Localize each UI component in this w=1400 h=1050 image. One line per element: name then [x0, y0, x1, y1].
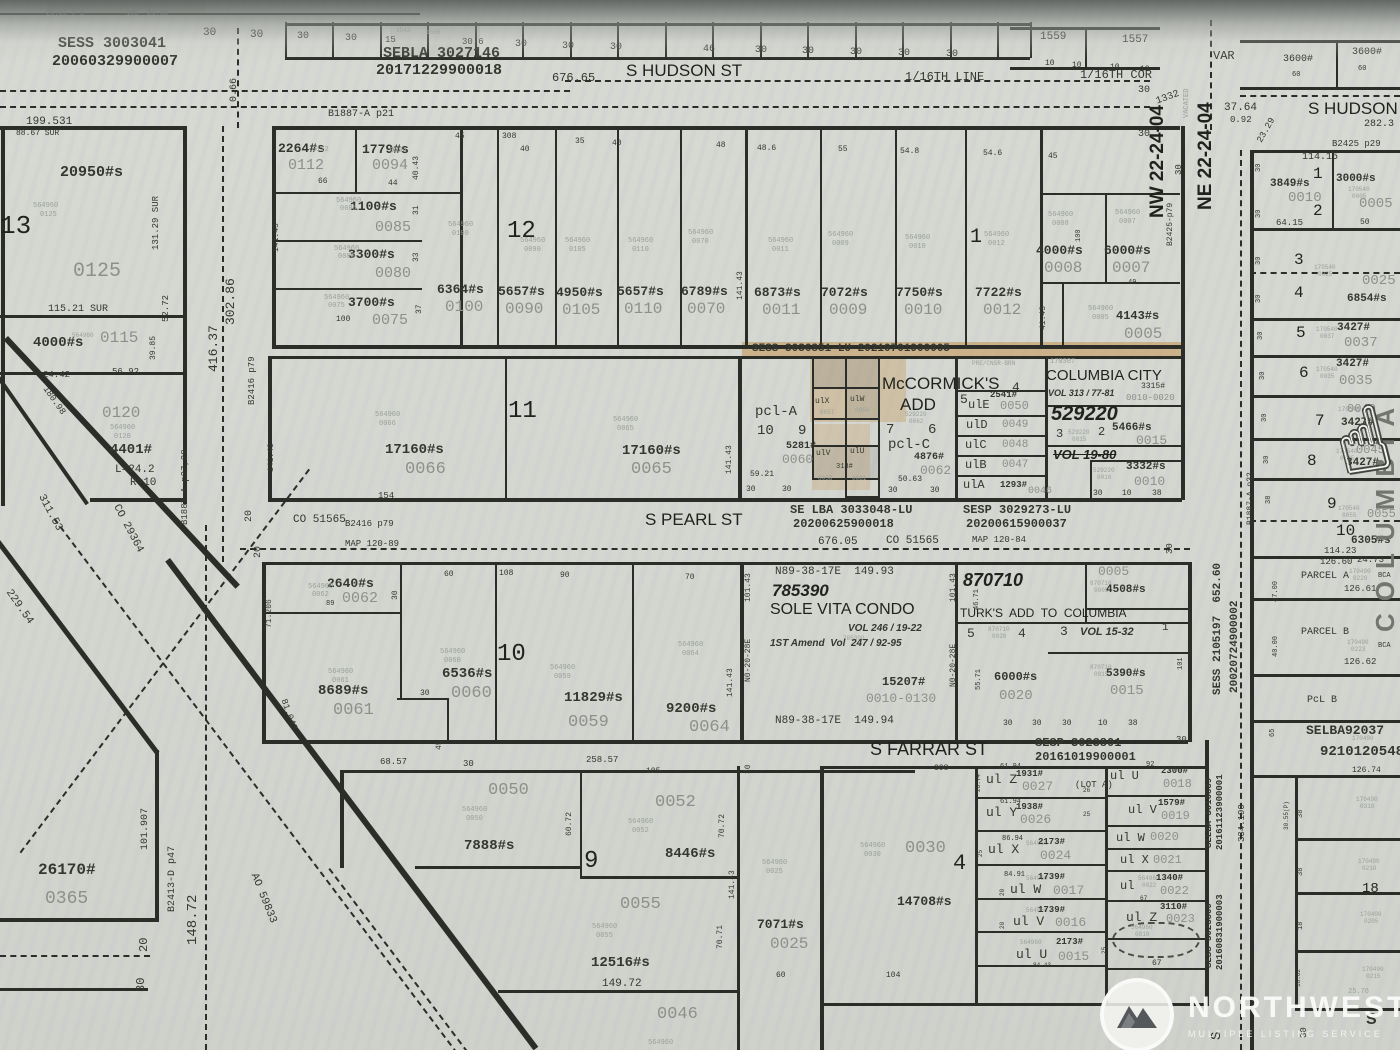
map-label: 0075: [372, 313, 408, 328]
map-label: 564960: [328, 669, 353, 676]
parcel-boundary: [1295, 838, 1400, 841]
map-label: 0060: [782, 453, 813, 466]
map-label: 3315#: [1141, 383, 1165, 391]
map-label: 0022: [1160, 885, 1189, 897]
map-label: 54.8: [900, 148, 919, 156]
map-label: SEBLA 3027146: [383, 46, 500, 61]
map-label: 15207#: [882, 676, 925, 688]
map-label: ul X: [988, 843, 1019, 856]
map-label: 20060329900007: [52, 54, 178, 69]
parcel-boundary: [1250, 674, 1400, 677]
map-label: 0062: [342, 591, 378, 606]
map-label: 564960: [592, 924, 617, 931]
map-label: 18: [1298, 922, 1305, 930]
map-label: 30: [888, 487, 898, 495]
map-label: 6364#s: [437, 283, 484, 296]
map-label: 39.85: [150, 336, 158, 360]
map-label: VOL 246 / 19-22: [848, 624, 922, 634]
map-label: 0.66: [230, 78, 240, 102]
map-label: 50.63: [898, 476, 922, 484]
map-label: PRE/CNSR-BRN: [972, 361, 1015, 367]
map-label: 0020: [999, 689, 1033, 703]
map-label: ulW: [850, 396, 864, 404]
map-label: 0310: [1360, 804, 1374, 810]
map-label: VACATED: [1184, 89, 1191, 118]
map-label: 0080: [338, 254, 355, 261]
map-label: 0049: [1002, 420, 1028, 431]
map-label: 23.29: [1256, 117, 1277, 145]
parcel-boundary: [745, 126, 748, 345]
map-label: 131.29 SUR: [152, 196, 161, 250]
map-label: 0012: [983, 302, 1021, 318]
map-label: 3: [1056, 428, 1063, 440]
map-label: 0110: [624, 301, 662, 317]
map-label: 10: [1098, 720, 1108, 728]
map-label: 564960: [72, 333, 94, 339]
parcel-boundary: [340, 770, 915, 773]
map-label: 30: [420, 690, 430, 698]
map-label: 40: [612, 140, 622, 148]
map-label: 30: [1264, 456, 1271, 464]
map-label: 5: [960, 393, 968, 406]
map-label: 30: [745, 764, 753, 774]
map-label: 20: [138, 938, 150, 952]
map-label: MAP 120-84: [972, 536, 1026, 545]
map-label: 0046: [657, 1006, 698, 1023]
map-label: 0007: [1112, 260, 1150, 276]
map-label: CO 51565: [886, 536, 939, 547]
map-label: 0120: [114, 434, 131, 441]
map-label: 0220: [1353, 576, 1367, 582]
map-label: 10: [1140, 66, 1150, 74]
map-label: 84.43: [1033, 963, 1051, 969]
map-label: 5: [967, 627, 975, 640]
parcel-boundary: [0, 90, 570, 92]
map-label: 1559: [1040, 32, 1066, 43]
parcel-boundary: [183, 126, 187, 504]
map-label: N89-38-17E 149.94: [775, 716, 894, 727]
map-label: 0005: [1092, 315, 1109, 322]
map-label: 33: [413, 252, 421, 262]
map-label: 1: [1162, 623, 1169, 634]
map-label: 0015: [1110, 684, 1144, 698]
map-label: 0205: [1364, 919, 1378, 925]
map-label: 0055: [596, 933, 613, 940]
map-label: 3332#s: [1126, 462, 1166, 473]
map-label: 30: [1166, 543, 1175, 554]
map-label: 0105: [569, 247, 586, 254]
map-label: 154: [378, 492, 394, 501]
map-label: 2640#s: [327, 577, 374, 590]
parcel-boundary: [580, 876, 738, 879]
street-label-s-farrar: S FARRAR ST: [870, 740, 988, 758]
section-label-nw: NW 22-24-04: [1148, 105, 1167, 218]
map-label: 5657#s: [498, 285, 545, 298]
parcel-boundary: [90, 498, 185, 502]
map-label: 529220: [1051, 404, 1118, 424]
parcel-boundary: [997, 22, 999, 58]
map-label: 311.53: [35, 493, 63, 533]
map-label: 10: [1110, 64, 1120, 72]
map-label: B2425-p79: [1167, 203, 1175, 246]
map-label: 0037: [1320, 334, 1334, 340]
map-label: ul V: [1128, 804, 1157, 816]
parcel-boundary: [845, 496, 880, 498]
map-label: 55: [838, 146, 848, 154]
map-label: 24.42: [43, 371, 70, 380]
map-label: 60: [1292, 72, 1300, 79]
map-label: 0112: [312, 147, 329, 154]
map-label: 26: [1083, 788, 1090, 794]
map-label: 3427#: [1336, 359, 1369, 370]
map-label: 0005: [1124, 326, 1162, 342]
map-label: 0115: [100, 330, 138, 346]
map-label: 70: [685, 574, 695, 582]
parcel-boundary: [397, 698, 447, 700]
map-label: 229.54: [3, 588, 35, 627]
map-label: 30: [562, 42, 574, 52]
map-label: 0018: [1135, 932, 1149, 938]
map-label: 4: [1294, 285, 1304, 301]
map-label: 870710: [963, 571, 1023, 589]
map-label: 9: [1327, 496, 1337, 512]
map-label: 0022: [1142, 883, 1156, 889]
map-label: 0.92: [1230, 116, 1252, 125]
map-label: 30: [1258, 332, 1265, 340]
map-label: N89-38-17E 149.93: [775, 567, 894, 578]
map-label: 564960: [110, 425, 135, 432]
map-label: 56.92: [112, 368, 139, 377]
plat-name-columbia-city: COLUMBIA CITY: [1046, 368, 1162, 383]
map-label: 25: [1083, 812, 1090, 818]
map-label: 25: [1102, 947, 1108, 954]
watermark-brand: NORTHWEST: [1188, 991, 1400, 1025]
map-label: N0-20-28E: [950, 644, 958, 687]
map-label: 30: [392, 590, 400, 600]
map-label: 0062: [920, 464, 951, 477]
map-label: 30: [746, 486, 756, 494]
map-label: 4: [1012, 381, 1020, 394]
map-label: 0223: [1351, 647, 1365, 653]
parcel-boundary: [975, 830, 1105, 832]
map-label: 0026: [1020, 813, 1051, 826]
map-label: 564960: [33, 203, 58, 210]
map-label: 0009: [829, 302, 867, 318]
map-label: 64.15: [1276, 219, 1303, 228]
parcel-boundary: [975, 766, 978, 1006]
map-label: 1340#: [1156, 874, 1183, 883]
map-label: 30: [1138, 130, 1150, 140]
map-label: ul: [1120, 880, 1134, 892]
map-label: 0035: [1339, 374, 1373, 388]
map-label: B2413-D p47: [168, 846, 178, 912]
map-label: 66: [318, 178, 328, 186]
parcel-boundary: [632, 562, 634, 742]
map-label: 45: [1048, 153, 1058, 161]
parcel-boundary: [895, 126, 897, 345]
map-label: 0005: [1359, 197, 1393, 211]
map-label: 2: [1313, 203, 1323, 219]
parcel-boundary: [820, 766, 824, 1050]
map-label: 46.71: [974, 589, 981, 610]
map-label: 1293#: [1000, 481, 1027, 490]
parcel-boundary: [222, 126, 224, 562]
map-label: 0056: [855, 408, 869, 414]
map-label: 30: [1256, 295, 1263, 303]
map-label: ul W: [1010, 883, 1041, 896]
parcel-boundary: [272, 126, 1180, 130]
map-label: 0027: [1022, 780, 1053, 793]
map-label: 0020: [1150, 831, 1179, 843]
map-label: 60.72: [566, 812, 574, 836]
parcel-boundary: [1240, 87, 1400, 90]
map-label: 3700#s: [348, 296, 395, 309]
map-label: 564960: [1088, 306, 1113, 313]
parcel-boundary: [268, 498, 1182, 502]
parcel-boundary: [570, 22, 572, 58]
map-label: 8446#s: [665, 847, 715, 861]
map-label: 35: [575, 138, 585, 146]
map-label: 564960: [324, 295, 349, 302]
map-label: 126.62: [1344, 658, 1376, 667]
map-label: 10: [1072, 62, 1082, 70]
map-label: 26.74: [976, 774, 982, 792]
map-label: 564960: [1115, 210, 1140, 217]
map-label: 0030: [905, 840, 946, 857]
parcel-boundary: [665, 22, 667, 58]
parcel-boundary: [272, 240, 422, 242]
parcel-boundary: [505, 358, 507, 498]
map-label: 30: [135, 978, 147, 992]
parcel-boundary: [0, 955, 150, 957]
map-label: 0015: [1072, 437, 1086, 443]
map-label: 308: [934, 765, 948, 773]
map-label: 199.531: [26, 117, 72, 128]
section-label-ne: NE 22-24-04: [1196, 102, 1215, 210]
map-label: VAR: [1213, 50, 1235, 62]
map-label: 30.6: [462, 38, 484, 47]
map-label: 676.65: [552, 72, 595, 84]
map-label: 30: [802, 47, 814, 57]
map-label: 54.6: [983, 150, 1002, 158]
parcel-boundary: [380, 22, 382, 58]
map-label: 141.43: [726, 445, 734, 474]
map-label: 170307: [1050, 359, 1075, 366]
map-label: 20: [254, 546, 264, 558]
parcel-boundary: [1105, 968, 1205, 970]
map-label: 6854#s: [1347, 294, 1387, 305]
map-label: VOL 313 / 77-81: [1048, 389, 1114, 398]
map-label: 30: [463, 760, 474, 769]
map-label: 0008: [1044, 260, 1082, 276]
map-label: 89: [326, 601, 334, 608]
map-label: 30: [782, 486, 792, 494]
parcel-boundary: [155, 750, 159, 922]
map-label: 70.71: [717, 925, 725, 949]
map-label: 0016: [1055, 916, 1086, 929]
map-label: 26170#: [38, 862, 96, 878]
map-label: 0025: [1362, 274, 1396, 288]
map-label: 30: [1262, 414, 1269, 422]
map-label: 30: [1260, 372, 1267, 380]
map-label: 0100: [452, 231, 469, 238]
map-label: 10: [1122, 490, 1132, 498]
map-label: 141.43: [737, 271, 745, 300]
map-label: 30: [930, 487, 940, 495]
map-label: 92: [1146, 762, 1154, 769]
parcel-boundary: [1295, 892, 1400, 895]
map-label: 0125: [40, 212, 57, 219]
map-label: 1ST Amend Vol 247 / 92-95: [770, 639, 902, 649]
map-label: 141.43: [729, 870, 737, 899]
parcel-boundary: [1240, 95, 1400, 97]
map-label: 11: [508, 400, 537, 424]
plat-name-mccormicks: McCORMICK'S: [882, 375, 1000, 392]
map-label: 17160#s: [385, 443, 444, 457]
boundary-diagonal: [0, 540, 159, 755]
map-label: 0064: [682, 651, 699, 658]
map-label: 9: [584, 850, 598, 874]
map-label: 0061: [333, 702, 374, 719]
map-label: 48: [716, 142, 726, 150]
map-label: 4: [953, 853, 966, 875]
map-label: 6873#s: [754, 286, 801, 299]
map-label: 45: [455, 133, 465, 141]
street-label-s-pearl: S PEARL ST: [645, 511, 743, 528]
map-label: 1: [970, 228, 982, 248]
parcel-boundary: [555, 126, 557, 345]
parcel-boundary: [447, 698, 449, 742]
parcel-boundary: [1048, 652, 1188, 654]
map-label: 564960: [688, 230, 713, 237]
map-label: 564960: [648, 1040, 673, 1047]
parcel-boundary: [1, 126, 5, 506]
map-label: 70.72: [719, 814, 727, 838]
map-label: 0070: [687, 301, 725, 317]
map-label: 5281#: [786, 442, 816, 452]
map-label: 7888#s: [464, 839, 514, 853]
map-label: 0048: [1002, 440, 1028, 451]
map-label: SESS 3003041: [58, 36, 166, 51]
map-label: ul Y: [986, 806, 1017, 819]
parcel-boundary: [262, 562, 266, 742]
map-label: 90: [560, 572, 570, 580]
map-label: 30: [850, 48, 862, 58]
map-label: 0047: [1002, 460, 1028, 471]
map-label: 7: [886, 423, 894, 437]
map-label: 30: [203, 28, 216, 39]
map-label: 0020: [992, 634, 1006, 640]
map-label: 564960: [334, 246, 359, 253]
map-label: 4401#: [110, 443, 152, 457]
map-label: 5: [1296, 325, 1306, 341]
map-label: 0075: [328, 303, 345, 310]
map-label: 31: [413, 205, 421, 215]
map-label: 30.55(P): [1284, 801, 1290, 830]
map-label: 0035: [1320, 374, 1334, 380]
map-label: 0037: [1344, 336, 1378, 350]
map-label: 0058: [818, 476, 832, 482]
map-label: ulU: [850, 448, 864, 456]
map-label: 13: [0, 213, 31, 239]
map-label: 148.72: [186, 895, 200, 945]
parcel-boundary: [738, 356, 742, 502]
map-label: 30: [250, 30, 263, 41]
map-label: 25: [978, 850, 984, 857]
map-label: 1938#: [1016, 803, 1043, 812]
map-label: 302.86: [224, 278, 237, 325]
parcel-boundary: [1295, 950, 1400, 953]
street-label-s-hudson-2: S HUDSON: [1308, 100, 1398, 117]
map-label: 114.23: [1324, 547, 1356, 556]
map-label: SESS 2105197 652.60: [1213, 563, 1224, 695]
map-label: 141.43: [273, 223, 281, 252]
map-label: 6: [1299, 365, 1309, 381]
map-label: ul Z: [986, 773, 1017, 786]
map-label: 88.67 SUR: [16, 130, 59, 138]
parcel-boundary: [580, 772, 582, 876]
map-label: 10: [497, 643, 526, 667]
map-label: 0064: [689, 719, 730, 736]
boundary-diagonal: [328, 868, 474, 1050]
parcel-boundary: [820, 126, 822, 345]
map-label: 67: [1140, 896, 1147, 902]
map-label: 100 28.08: [126, 11, 168, 18]
map-label: 115.21 SUR: [48, 305, 108, 315]
map-label: 105: [646, 768, 660, 776]
map-label: 126.60: [1320, 558, 1352, 567]
map-label: R=10: [130, 478, 156, 489]
parcel-boundary: [1105, 825, 1205, 827]
map-label: 564960: [375, 412, 400, 419]
map-label: 52.72: [162, 295, 171, 322]
map-label: BCA: [1378, 643, 1391, 650]
map-label: 564960: [762, 860, 787, 867]
map-label: 170490: [1352, 736, 1374, 742]
map-label: 1931#: [1016, 770, 1043, 779]
map-label: 564960: [440, 649, 465, 656]
map-label: 0009: [832, 241, 849, 248]
nwmls-text: NORTHWEST MULTIPLE LISTING SERVICE: [1188, 991, 1400, 1039]
map-label: 0023: [1166, 913, 1195, 925]
dashed-structure-outline: [1112, 922, 1200, 958]
map-label: 0085: [340, 206, 357, 213]
map-label: 564960: [462, 807, 487, 814]
map-label: 564960: [336, 198, 361, 205]
map-label: SELBA 3016889: [1205, 778, 1214, 848]
plat-map[interactable]: 26.81 7 9100 28.08SESS 30030412006032990…: [0, 0, 1400, 1050]
map-label: 37.64: [1224, 103, 1257, 114]
map-label: 0025: [766, 869, 783, 876]
parcel-boundary: [955, 415, 1045, 417]
map-label: 67: [1152, 960, 1162, 968]
parcel-boundary: [1090, 460, 1092, 498]
map-label: 60: [776, 972, 786, 980]
map-label: 0025: [1318, 272, 1332, 278]
map-label: PARCEL B: [1301, 628, 1349, 638]
parcel-boundary: [1105, 795, 1205, 797]
map-label: 564960: [308, 584, 333, 591]
map-label: SESP 3023801: [1035, 737, 1121, 749]
parcel-boundary: [878, 357, 880, 496]
parcel-boundary: [1062, 282, 1064, 345]
map-label: 0005: [1098, 565, 1129, 578]
map-label: 785390: [772, 582, 829, 599]
map-label: 0081: [852, 476, 866, 482]
map-label: 0050: [1000, 400, 1029, 412]
map-label: CO 29364: [110, 503, 145, 555]
map-label: SESS 3023800: [1205, 903, 1214, 968]
